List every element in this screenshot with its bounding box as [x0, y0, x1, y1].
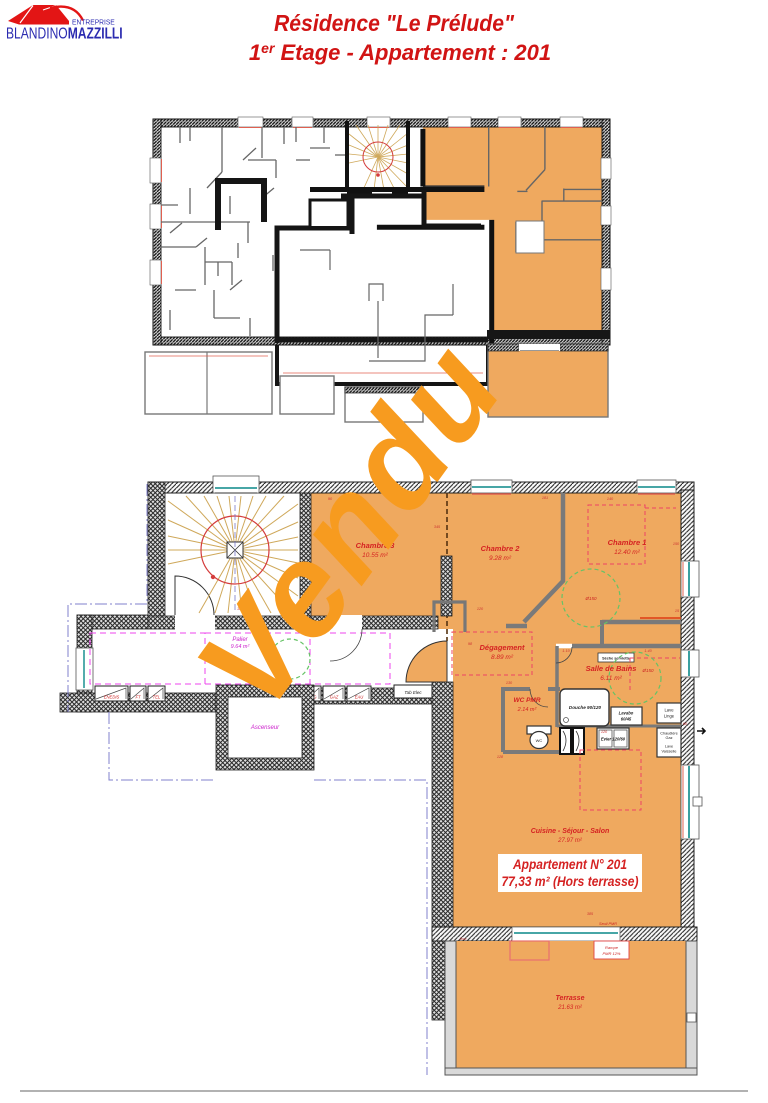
svg-text:150: 150	[673, 542, 680, 546]
svg-text:Appartement N° 201: Appartement N° 201	[512, 857, 627, 872]
svg-text:Chambre 1: Chambre 1	[608, 538, 647, 547]
svg-text:WC: WC	[536, 738, 543, 743]
svg-text:181: 181	[542, 496, 548, 500]
svg-text:6.11 m²: 6.11 m²	[600, 675, 622, 682]
svg-text:60/45: 60/45	[621, 717, 632, 722]
svg-text:Linge: Linge	[664, 714, 675, 719]
svg-text:12.40 m²: 12.40 m²	[614, 549, 640, 556]
svg-text:Evier 120/60: Evier 120/60	[601, 737, 626, 742]
svg-text:BLANDINOMAZZILLI: BLANDINOMAZZILLI	[6, 24, 123, 42]
svg-text:120: 120	[477, 607, 484, 611]
svg-text:128: 128	[497, 755, 504, 759]
svg-text:Seuil PMR: Seuil PMR	[599, 922, 617, 926]
svg-text:Gaz: Gaz	[666, 736, 673, 740]
svg-text:9.28 m²: 9.28 m²	[489, 555, 512, 562]
svg-text:Chambre 2: Chambre 2	[481, 544, 521, 553]
svg-text:8.89 m²: 8.89 m²	[491, 654, 514, 661]
svg-text:77,33 m² (Hors terrasse): 77,33 m² (Hors terrasse)	[502, 874, 639, 889]
svg-text:PMR 12%: PMR 12%	[602, 951, 620, 956]
svg-text:Vaisselle: Vaisselle	[662, 750, 677, 754]
svg-text:21.63 m²: 21.63 m²	[557, 1005, 583, 1011]
svg-text:ENEDIS: ENEDIS	[104, 695, 120, 700]
svg-text:140: 140	[607, 497, 614, 501]
svg-text:Chaudière: Chaudière	[660, 732, 678, 736]
svg-text:GAZ: GAZ	[330, 695, 339, 700]
svg-text:TEL: TEL	[153, 695, 161, 700]
svg-text:Salle de Bains: Salle de Bains	[586, 664, 637, 673]
svg-text:Terrasse: Terrasse	[556, 995, 585, 1002]
svg-text:Ø150: Ø150	[584, 596, 597, 601]
svg-text:Dégagement: Dégagement	[479, 643, 525, 652]
svg-text:Cuisine - Séjour - Salon: Cuisine - Séjour - Salon	[531, 828, 610, 835]
svg-text:Lavabo: Lavabo	[619, 711, 634, 716]
svg-text:130: 130	[506, 681, 513, 685]
svg-text:Lave: Lave	[665, 745, 673, 749]
svg-text:Rampe: Rampe	[605, 945, 619, 950]
svg-text:Tab Elec: Tab Elec	[404, 690, 422, 695]
svg-text:385: 385	[587, 912, 594, 916]
svg-text:120: 120	[601, 730, 608, 734]
svg-text:Douche 90/120: Douche 90/120	[569, 705, 602, 710]
svg-text:FT: FT	[135, 695, 141, 700]
svg-text:WC PMR: WC PMR	[513, 697, 540, 704]
svg-text:1er Etage - Appartement : 201: 1er Etage - Appartement : 201	[249, 40, 551, 65]
svg-text:1.10: 1.10	[562, 649, 570, 653]
svg-text:EAU: EAU	[355, 695, 365, 700]
svg-text:Dou: Dou	[460, 937, 468, 941]
svg-text:Ø150: Ø150	[641, 668, 654, 673]
svg-text:27.97 m²: 27.97 m²	[557, 838, 583, 844]
svg-text:2.14 m²: 2.14 m²	[517, 707, 537, 713]
svg-text:Lave: Lave	[664, 708, 674, 713]
svg-text:1.40: 1.40	[644, 649, 652, 653]
svg-text:Résidence "Le Prélude": Résidence "Le Prélude"	[274, 10, 515, 36]
